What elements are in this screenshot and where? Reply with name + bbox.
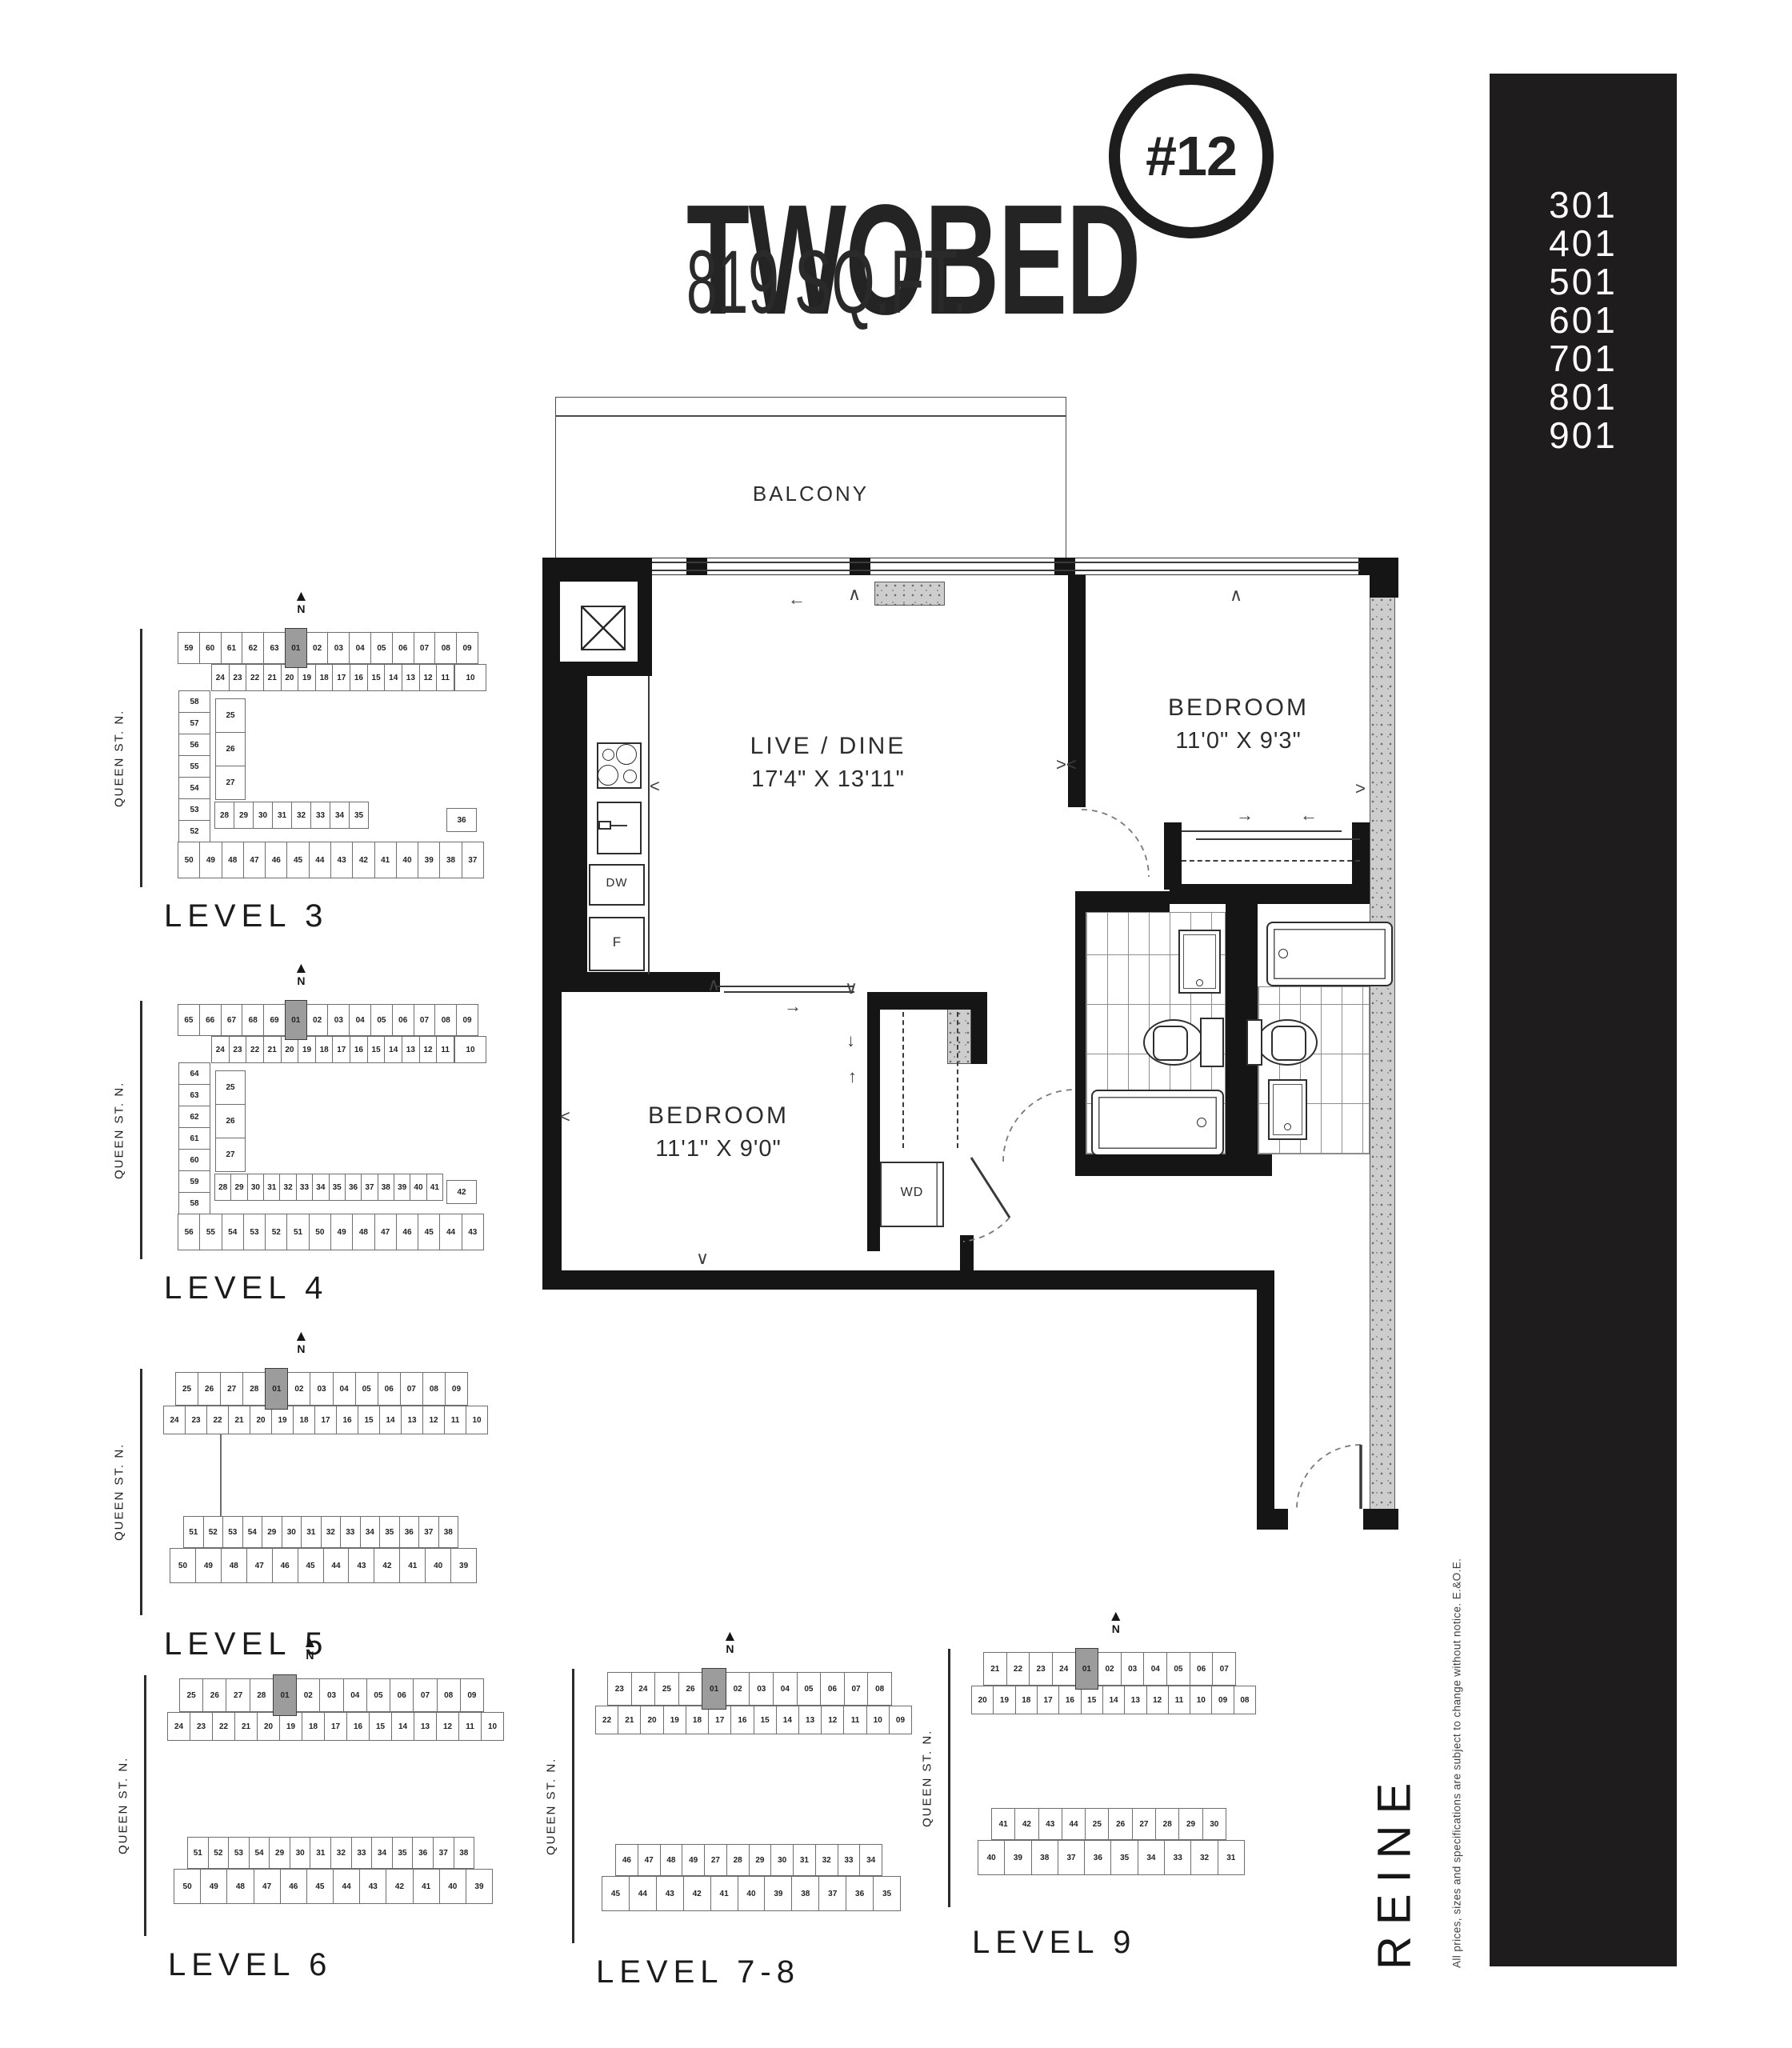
fridge-label: F — [589, 934, 645, 950]
keyplan-unit-cell: 03 — [319, 1678, 343, 1712]
toilet-bowl — [1257, 1019, 1318, 1066]
unit-number: 601 — [1549, 301, 1618, 339]
direction-arrow-icon: ↑ — [848, 1068, 872, 1089]
wall — [1257, 1509, 1288, 1530]
unit-number: 901 — [1549, 416, 1618, 454]
keyplan-level-3-diagram: 5960616263010203040506070809242322212019… — [164, 632, 488, 884]
dishwasher-label: DW — [589, 876, 645, 890]
keyplan-unit-cell: 19 — [993, 1686, 1015, 1714]
closet-rod — [1182, 860, 1360, 862]
direction-arrow-icon: ∧ — [1230, 586, 1254, 607]
keyplan-unit-cell: 58 — [178, 1192, 210, 1214]
wall — [1164, 822, 1182, 890]
keyplan-unit-cell: 17 — [708, 1706, 731, 1734]
balcony-label: BALCONY — [555, 482, 1066, 506]
concrete-column — [1370, 596, 1395, 1528]
keyplan-unit-cell: 41 — [413, 1869, 440, 1904]
keyplan-unit-cell: 18 — [686, 1706, 709, 1734]
keyplan-unit-cell: 08 — [422, 1372, 446, 1406]
keyplan-unit-cell: 48 — [352, 1214, 374, 1250]
keyplan-unit-cell: 67 — [221, 1004, 243, 1036]
direction-arrow-icon: < — [650, 778, 674, 798]
keyplan-unit-cell: 45 — [602, 1876, 630, 1911]
keyplan-unit-cell: 24 — [1052, 1652, 1076, 1686]
keyplan-unit-cell: 08 — [1234, 1686, 1256, 1714]
sliding-door-track — [716, 986, 854, 987]
keyplan-unit-cell: 39 — [418, 842, 440, 878]
keyplan-unit-cell: 48 — [222, 842, 244, 878]
closet-door-track — [1196, 838, 1360, 840]
keyplan-unit-cell: 23 — [1029, 1652, 1053, 1686]
keyplan-unit-cell: 28 — [214, 1174, 231, 1201]
keyplan-level-7-8-diagram: 2324252601020304050607082221201918171615… — [596, 1672, 912, 1940]
keyplan-unit-cell: 65 — [178, 1004, 200, 1036]
keyplan-level-3: 5960616263010203040506070809242322212019… — [164, 632, 488, 884]
direction-arrow-icon: > — [1355, 780, 1379, 801]
keyplan-unit-cell: 31 — [310, 1837, 331, 1869]
keyplan-unit-cell: 24 — [211, 1036, 230, 1063]
keyplan-level-4-diagram: 6566676869010203040506070809242322212019… — [164, 1004, 488, 1256]
keyplan-unit-cell: 24 — [163, 1406, 186, 1434]
keyplan-unit-cell: 28 — [242, 1372, 266, 1406]
keyplan-unit-cell: 45 — [286, 842, 309, 878]
bathroom-tile-floor — [1258, 986, 1370, 1154]
keyplan-unit-cell: 44 — [1062, 1808, 1086, 1840]
keyplan-level-6: 2526272801020304050607080924232221201918… — [168, 1678, 504, 1933]
keyplan-unit-cell: 18 — [315, 664, 334, 691]
keyplan-unit-cell: 10 — [454, 664, 486, 691]
wall — [542, 974, 562, 1290]
keyplan-unit-cell: 17 — [324, 1712, 347, 1741]
keyplan-unit-cell: 10 — [1190, 1686, 1212, 1714]
keyplan-unit-cell: 52 — [178, 820, 210, 842]
keyplan-unit-cell: 04 — [1143, 1652, 1167, 1686]
keyplan-unit-cell: 12 — [419, 1036, 438, 1063]
keyplan-unit-cell: 16 — [1058, 1686, 1081, 1714]
faucet — [598, 821, 611, 830]
keyplan-unit-cell: 53 — [243, 1214, 266, 1250]
keyplan-unit-cell: 22 — [212, 1712, 235, 1741]
keyplan-unit-cell: 21 — [983, 1652, 1007, 1686]
keyplan-unit-cell-highlighted: 01 — [702, 1668, 726, 1710]
keyplan-unit-cell: 35 — [1110, 1840, 1138, 1875]
keyplan-unit-cell: 60 — [178, 1149, 210, 1171]
direction-arrow-icon: ∧ — [848, 586, 872, 606]
keyplan-unit-cell: 17 — [332, 1036, 350, 1063]
keyplan-unit-cell: 53 — [222, 1516, 243, 1548]
keyplan-unit-cell: 36 — [345, 1174, 362, 1201]
floorplan-page: TWOBED #12 819 SQ.FT. →∧∨<∨<←∧∧→←>><↓↑ B… — [0, 0, 1792, 2048]
wall — [1352, 822, 1370, 890]
keyplan-unit-cell: 41 — [426, 1174, 443, 1201]
street-line — [144, 1675, 146, 1936]
burner — [598, 765, 618, 786]
unit-list-sidebar: 301401501601701801901 — [1490, 74, 1677, 1966]
keyplan-unit-cell: 17 — [332, 664, 350, 691]
keyplan-unit-cell: 06 — [390, 1678, 414, 1712]
wall — [971, 998, 987, 1064]
bedroom-primary-dimensions: 11'0" X 9'3" — [1118, 728, 1358, 754]
sink-basin — [1273, 1084, 1302, 1135]
keyplan-unit-cell-highlighted: 01 — [265, 1368, 288, 1410]
direction-arrow-icon: ∨ — [696, 1250, 720, 1270]
keyplan-unit-cell: 26 — [202, 1678, 226, 1712]
keyplan-unit-cell: 41 — [991, 1808, 1015, 1840]
keyplan-unit-cell: 29 — [1178, 1808, 1202, 1840]
keyplan-unit-cell: 21 — [234, 1712, 258, 1741]
keyplan-unit-cell: 27 — [1132, 1808, 1156, 1840]
keyplan-unit-cell: 14 — [379, 1406, 402, 1434]
keyplan-unit-cell: 12 — [422, 1406, 445, 1434]
keyplan-unit-cell: 59 — [178, 1170, 210, 1193]
keyplan-unit-cell: 39 — [466, 1869, 493, 1904]
keyplan-unit-cell: 21 — [228, 1406, 250, 1434]
washer-dryer-label: WD — [880, 1186, 944, 1200]
keyplan-unit-cell: 30 — [1202, 1808, 1226, 1840]
unit-number: 701 — [1549, 339, 1618, 378]
keyplan-unit-cell: 38 — [439, 842, 462, 878]
keyplan-unit-cell: 13 — [1124, 1686, 1146, 1714]
wall — [1363, 1509, 1398, 1530]
keyplan-level-9: 2122232401020304050607201918171615141312… — [972, 1652, 1256, 1904]
closet-door-track — [1182, 830, 1342, 832]
keyplan-unit-cell: 25 — [215, 698, 246, 733]
keyplan-unit-cell: 24 — [631, 1672, 656, 1706]
keyplan-unit-cell: 10 — [454, 1036, 486, 1063]
keyplan-unit-cell: 19 — [298, 664, 316, 691]
keyplan-unit-cell: 11 — [458, 1712, 482, 1741]
keyplan-unit-cell: 45 — [298, 1548, 324, 1583]
keyplan-level-9-diagram: 2122232401020304050607201918171615141312… — [972, 1652, 1256, 1904]
keyplan-unit-cell: 61 — [221, 632, 243, 664]
keyplan-unit-cell: 53 — [228, 1837, 250, 1869]
level-label: LEVEL 3 — [164, 898, 328, 934]
keyplan-unit-cell: 10 — [481, 1712, 504, 1741]
keyplan-unit-cell: 43 — [359, 1869, 386, 1904]
keyplan-unit-cell: 06 — [392, 632, 414, 664]
direction-arrow-icon: → — [784, 998, 808, 1018]
keyplan-unit-cell: 47 — [374, 1214, 397, 1250]
keyplan-unit-cell: 48 — [221, 1548, 247, 1583]
live-dine-dimensions: 17'4" X 13'11" — [708, 766, 948, 793]
wall — [1226, 904, 1258, 1166]
keyplan-unit-cell: 44 — [309, 842, 331, 878]
keyplan-unit-cell: 41 — [399, 1548, 426, 1583]
keyplan-unit-cell: 09 — [889, 1706, 912, 1734]
keyplan-unit-cell: 46 — [265, 842, 287, 878]
keyplan-unit-cell: 56 — [178, 1214, 200, 1250]
keyplan-unit-cell: 51 — [187, 1837, 209, 1869]
keyplan-connector-line — [220, 1434, 222, 1516]
keyplan-unit-cell: 14 — [384, 1036, 402, 1063]
bathroom-tile-floor — [1086, 912, 1226, 1154]
keyplan-unit-cell: 15 — [367, 1036, 386, 1063]
keyplan-unit-cell: 13 — [402, 1036, 420, 1063]
keyplan-unit-cell: 47 — [243, 842, 266, 878]
keyplan-unit-cell: 47 — [246, 1548, 273, 1583]
keyplan-unit-cell: 04 — [343, 1678, 367, 1712]
keyplan-unit-cell: 26 — [215, 1104, 246, 1138]
keyplan-unit-cell: 03 — [327, 1004, 350, 1036]
keyplan-unit-cell: 44 — [333, 1869, 360, 1904]
balcony-edge-line — [556, 415, 1066, 417]
keyplan-unit-cell: 29 — [749, 1844, 772, 1876]
keyplan-unit-cell: 16 — [350, 664, 368, 691]
keyplan-unit-cell: 55 — [178, 755, 210, 778]
wall — [867, 1152, 880, 1251]
keyplan-unit-cell: 04 — [773, 1672, 798, 1706]
keyplan-unit-cell: 59 — [178, 632, 200, 664]
keyplan-unit-cell: 06 — [378, 1372, 401, 1406]
sliding-door-track — [724, 991, 854, 993]
keyplan-unit-cell: 47 — [638, 1844, 661, 1876]
keyplan-unit-cell: 24 — [211, 664, 230, 691]
keyplan-unit-cell-highlighted: 01 — [285, 628, 307, 668]
keyplan-unit-cell: 12 — [821, 1706, 844, 1734]
keyplan-unit-cell: 15 — [754, 1706, 777, 1734]
keyplan-unit-cell: 02 — [1098, 1652, 1122, 1686]
keyplan-unit-cell: 40 — [396, 842, 418, 878]
keyplan-unit-cell: 13 — [414, 1712, 437, 1741]
keyplan-unit-cell: 42 — [683, 1876, 711, 1911]
keyplan-unit-cell: 07 — [413, 1678, 437, 1712]
unit-number: 501 — [1549, 262, 1618, 301]
keyplan-unit-cell: 64 — [178, 1062, 210, 1085]
concrete-column — [874, 582, 945, 606]
keyplan-unit-cell: 23 — [190, 1712, 213, 1741]
keyplan-unit-cell: 15 — [369, 1712, 392, 1741]
keyplan-unit-cell: 20 — [640, 1706, 663, 1734]
keyplan-unit-cell: 26 — [198, 1372, 221, 1406]
keyplan-unit-cell: 30 — [282, 1516, 302, 1548]
keyplan-unit-cell: 14 — [391, 1712, 414, 1741]
keyplan-unit-cell: 20 — [281, 664, 299, 691]
keyplan-unit-cell: 34 — [312, 1174, 329, 1201]
keyplan-unit-cell: 12 — [1146, 1686, 1169, 1714]
unit-area: 819 SQ.FT. — [686, 230, 967, 334]
keyplan-unit-cell: 28 — [250, 1678, 274, 1712]
keyplan-unit-cell: 04 — [333, 1372, 356, 1406]
keyplan-unit-cell: 60 — [199, 632, 222, 664]
live-dine-label: LIVE / DINE — [708, 733, 948, 760]
keyplan-unit-cell: 27 — [220, 1372, 243, 1406]
street-line — [948, 1649, 950, 1907]
keyplan-unit-cell: 30 — [290, 1837, 311, 1869]
keyplan-unit-cell: 31 — [1218, 1840, 1245, 1875]
keyplan-unit-cell: 27 — [215, 1138, 246, 1172]
keyplan-unit-cell: 35 — [329, 1174, 346, 1201]
keyplan-unit-cell: 11 — [444, 1406, 466, 1434]
keyplan-unit-cell: 11 — [843, 1706, 866, 1734]
wall — [1068, 575, 1086, 807]
keyplan-unit-cell: 25 — [654, 1672, 679, 1706]
keyplan-unit-cell: 13 — [401, 1406, 423, 1434]
keyplan-unit-cell: 48 — [660, 1844, 683, 1876]
keyplan-unit-cell: 07 — [414, 1004, 436, 1036]
keyplan-unit-cell: 02 — [296, 1678, 320, 1712]
unit-list: 301401501601701801901 — [1490, 186, 1677, 454]
keyplan-unit-cell: 39 — [764, 1876, 792, 1911]
keyplan-unit-cell: 19 — [279, 1712, 302, 1741]
keyplan-unit-cell: 23 — [229, 1036, 247, 1063]
keyplan-unit-cell: 51 — [183, 1516, 204, 1548]
keyplan-unit-cell: 54 — [178, 777, 210, 799]
keyplan-unit-cell: 15 — [367, 664, 386, 691]
keyplan-level-6-diagram: 2526272801020304050607080924232221201918… — [168, 1678, 504, 1933]
wall — [1075, 1154, 1272, 1176]
keyplan-unit-cell: 32 — [330, 1837, 352, 1869]
keyplan-unit-cell: 22 — [206, 1406, 229, 1434]
keyplan-unit-cell: 06 — [392, 1004, 414, 1036]
keyplan-unit-cell: 40 — [978, 1840, 1005, 1875]
street-label: QUEEN ST. N. — [103, 632, 135, 884]
keyplan-unit-cell: 33 — [340, 1516, 361, 1548]
disclaimer-text: All prices, sizes and specifications are… — [1445, 1672, 1469, 1968]
keyplan-unit-cell: 52 — [265, 1214, 287, 1250]
direction-arrow-icon: < — [560, 1108, 584, 1129]
keyplan-unit-cell: 32 — [291, 802, 311, 829]
keyplan-unit-cell: 40 — [439, 1869, 466, 1904]
keyplan-unit-cell: 05 — [355, 1372, 378, 1406]
keyplan-unit-cell: 36 — [399, 1516, 420, 1548]
north-arrow-icon: ▲N — [294, 962, 309, 987]
direction-arrow-icon: ← — [1300, 806, 1324, 827]
keyplan-unit-cell: 37 — [1058, 1840, 1085, 1875]
keyplan-unit-cell: 37 — [361, 1174, 378, 1201]
north-arrow-icon: ▲N — [294, 1330, 309, 1355]
keyplan-unit-cell: 44 — [439, 1214, 462, 1250]
north-arrow-icon: ▲N — [294, 590, 309, 615]
keyplan-unit-cell: 08 — [437, 1678, 461, 1712]
wall — [867, 1010, 880, 1154]
keyplan-unit-cell: 37 — [418, 1516, 439, 1548]
keyplan-unit-cell: 15 — [358, 1406, 380, 1434]
bathtub — [1266, 922, 1393, 986]
keyplan-unit-cell: 09 — [456, 632, 478, 664]
keyplan-unit-cell: 32 — [815, 1844, 838, 1876]
burner — [616, 744, 637, 765]
keyplan-unit-cell: 09 — [1211, 1686, 1234, 1714]
street-line — [572, 1669, 574, 1943]
keyplan-unit-cell: 20 — [257, 1712, 280, 1741]
keyplan-unit-cell: 11 — [1168, 1686, 1190, 1714]
toilet-seat — [1153, 1026, 1188, 1061]
closet-rod — [957, 1012, 958, 1148]
keyplan-unit-cell: 05 — [797, 1672, 822, 1706]
keyplan-unit-cell: 09 — [456, 1004, 478, 1036]
reine-logo: REINE — [1360, 1770, 1429, 1970]
keyplan-unit-cell: 37 — [462, 842, 484, 878]
sink-basin — [1183, 934, 1216, 989]
keyplan-unit-cell: 45 — [306, 1869, 334, 1904]
faucet-dot — [1196, 979, 1203, 986]
keyplan-unit-cell: 50 — [178, 842, 200, 878]
keyplan-unit-cell: 28 — [214, 802, 234, 829]
keyplan-unit-cell: 50 — [174, 1869, 201, 1904]
toilet-bowl — [1143, 1019, 1204, 1066]
keyplan-unit-cell: 14 — [1102, 1686, 1125, 1714]
shaft-opening — [560, 582, 638, 662]
keyplan-unit-cell: 21 — [263, 664, 282, 691]
keyplan-unit-cell: 42 — [386, 1869, 413, 1904]
vanity-sink — [1268, 1079, 1307, 1140]
wall — [1170, 884, 1370, 904]
keyplan-unit-cell: 56 — [178, 734, 210, 756]
keyplan-level-4: 6566676869010203040506070809242322212019… — [164, 1004, 488, 1256]
keyplan-unit-cell: 03 — [1121, 1652, 1145, 1686]
keyplan-unit-cell: 22 — [1006, 1652, 1030, 1686]
keyplan-unit-cell: 46 — [615, 1844, 638, 1876]
keyplan-unit-cell: 16 — [350, 1036, 368, 1063]
keyplan-unit-cell: 38 — [1031, 1840, 1058, 1875]
unit-number: 301 — [1549, 186, 1618, 224]
keyplan-unit-cell: 31 — [272, 802, 292, 829]
keyplan-unit-cell: 18 — [1015, 1686, 1038, 1714]
wall — [867, 992, 987, 1010]
keyplan-unit-cell: 58 — [178, 690, 210, 713]
keyplan-unit-cell: 43 — [462, 1214, 484, 1250]
wall — [542, 676, 587, 974]
keyplan-unit-cell: 63 — [263, 632, 286, 664]
keyplan-unit-cell: 02 — [287, 1372, 310, 1406]
level-label: LEVEL 4 — [164, 1270, 328, 1306]
keyplan-unit-cell: 42 — [1014, 1808, 1038, 1840]
keyplan-unit-cell: 11 — [436, 1036, 454, 1063]
keyplan-unit-cell: 35 — [379, 1516, 400, 1548]
keyplan-unit-cell: 18 — [315, 1036, 334, 1063]
keyplan-unit-cell: 21 — [263, 1036, 282, 1063]
keyplan-unit-cell: 27 — [704, 1844, 727, 1876]
window-wall — [542, 558, 1398, 575]
wall — [1075, 891, 1170, 912]
keyplan-unit-cell: 32 — [279, 1174, 296, 1201]
keyplan-unit-cell: 02 — [306, 632, 329, 664]
keyplan-unit-cell-highlighted: 01 — [1075, 1648, 1099, 1690]
keyplan-unit-cell: 19 — [663, 1706, 686, 1734]
bathtub — [1091, 1090, 1224, 1156]
burner — [602, 749, 614, 761]
keyplan-unit-cell: 37 — [433, 1837, 454, 1869]
keyplan-unit-cell: 42 — [446, 1180, 477, 1204]
keyplan-unit-cell: 34 — [360, 1516, 381, 1548]
keyplan-unit-cell: 43 — [1038, 1808, 1062, 1840]
wall — [542, 558, 652, 676]
wall — [960, 1235, 974, 1272]
concrete-column — [947, 1000, 971, 1064]
toilet-tank — [1200, 1018, 1224, 1067]
keyplan-unit-cell: 07 — [400, 1372, 423, 1406]
keyplan-unit-cell: 03 — [310, 1372, 333, 1406]
keyplan-unit-cell: 06 — [1190, 1652, 1214, 1686]
keyplan-unit-cell: 47 — [254, 1869, 281, 1904]
direction-arrow-icon: ∨ — [845, 979, 869, 1000]
keyplan-unit-cell: 37 — [818, 1876, 846, 1911]
keyplan-unit-cell: 29 — [234, 802, 254, 829]
keyplan-unit-cell: 17 — [314, 1406, 337, 1434]
keyplan-unit-cell: 03 — [327, 632, 350, 664]
keyplan-unit-cell: 27 — [215, 766, 246, 800]
keyplan-unit-cell: 39 — [1004, 1840, 1031, 1875]
street-label: QUEEN ST. N. — [535, 1672, 567, 1940]
keyplan-unit-cell: 08 — [434, 632, 457, 664]
keyplan-unit-cell: 43 — [348, 1548, 374, 1583]
burner — [623, 770, 637, 783]
keyplan-unit-cell: 16 — [730, 1706, 754, 1734]
keyplan-unit-cell: 69 — [263, 1004, 286, 1036]
keyplan-unit-cell: 10 — [466, 1406, 488, 1434]
keyplan-unit-cell: 52 — [208, 1837, 230, 1869]
keyplan-unit-cell: 22 — [246, 1036, 264, 1063]
